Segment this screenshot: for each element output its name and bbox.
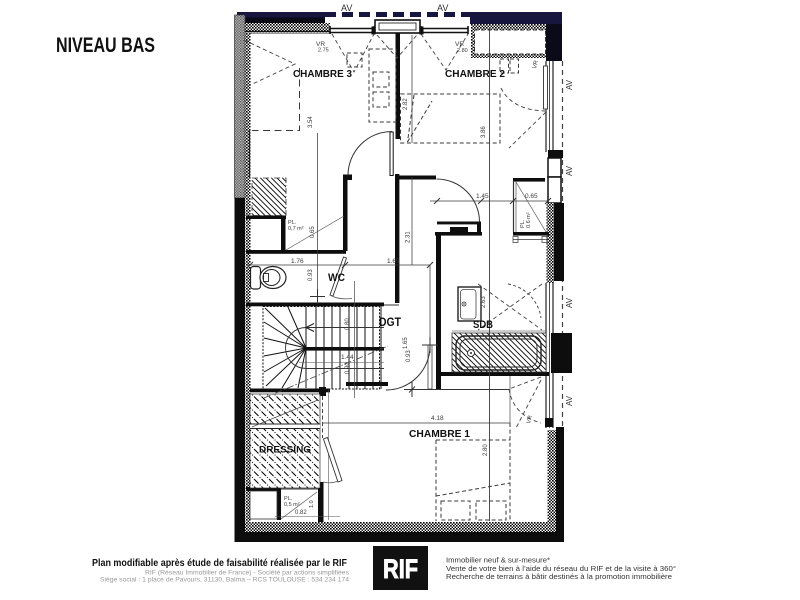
svg-text:RIF (Réseau Immobilier de Fran: RIF (Réseau Immobilier de France) - Soci…	[145, 570, 349, 577]
svg-text:WC: WC	[328, 272, 345, 284]
svg-text:2.75: 2.75	[318, 48, 329, 54]
svg-text:3.86: 3.86	[481, 126, 487, 138]
svg-text:2.80: 2.80	[457, 48, 468, 54]
svg-text:AV: AV	[565, 79, 574, 90]
svg-text:0.65: 0.65	[310, 226, 316, 238]
svg-text:VR: VR	[455, 41, 464, 48]
svg-text:1.0: 1.0	[309, 500, 315, 508]
svg-text:DGT: DGT	[379, 317, 401, 329]
svg-text:1.45: 1.45	[476, 193, 489, 200]
svg-text:0,5 m²: 0,5 m²	[284, 502, 300, 508]
svg-text:0.6 m²: 0.6 m²	[526, 212, 532, 228]
svg-text:2.63: 2.63	[481, 296, 487, 308]
svg-text:RIF: RIF	[383, 554, 418, 584]
svg-text:0.93: 0.93	[406, 350, 412, 362]
svg-text:1.65: 1.65	[403, 337, 409, 349]
svg-text:0.90: 0.90	[345, 362, 351, 374]
svg-text:2.80: 2.80	[483, 444, 489, 456]
svg-text:CHAMBRE 1: CHAMBRE 1	[409, 428, 470, 440]
svg-text:AV: AV	[565, 165, 574, 176]
svg-text:CHAMBRE 3: CHAMBRE 3	[293, 68, 352, 80]
svg-text:Recherche de terrains à bâtir: Recherche de terrains à bâtir destinés à…	[446, 572, 672, 581]
svg-text:4.18: 4.18	[431, 415, 444, 422]
svg-text:CHAMBRE 2: CHAMBRE 2	[445, 68, 505, 80]
svg-text:1.65: 1.65	[387, 258, 400, 265]
svg-text:AV: AV	[341, 3, 352, 13]
svg-text:2.82: 2.82	[403, 98, 409, 110]
svg-text:1.76: 1.76	[291, 258, 304, 265]
svg-text:0.82: 0.82	[295, 510, 307, 516]
svg-text:3.54: 3.54	[308, 116, 314, 128]
svg-text:AV: AV	[565, 395, 574, 406]
svg-text:Plan modifiable après étude de: Plan modifiable après étude de faisabili…	[92, 557, 347, 569]
svg-text:Siège social : 1 place de P: Siège social : 1 place de Pavours, 31130…	[100, 577, 350, 584]
svg-text:1.44: 1.44	[341, 354, 354, 361]
svg-text:2.31: 2.31	[406, 231, 412, 243]
svg-text:AV: AV	[565, 297, 574, 308]
svg-text:0.93: 0.93	[308, 269, 314, 281]
svg-text:0.80: 0.80	[345, 318, 351, 330]
svg-text:SDB: SDB	[473, 319, 493, 331]
svg-text:0.65: 0.65	[525, 193, 538, 200]
svg-text:AV: AV	[437, 3, 448, 13]
svg-text:DRESSING: DRESSING	[259, 445, 311, 456]
svg-text:NIVEAU BAS: NIVEAU BAS	[56, 34, 155, 57]
svg-text:0,7 m²: 0,7 m²	[288, 226, 304, 232]
